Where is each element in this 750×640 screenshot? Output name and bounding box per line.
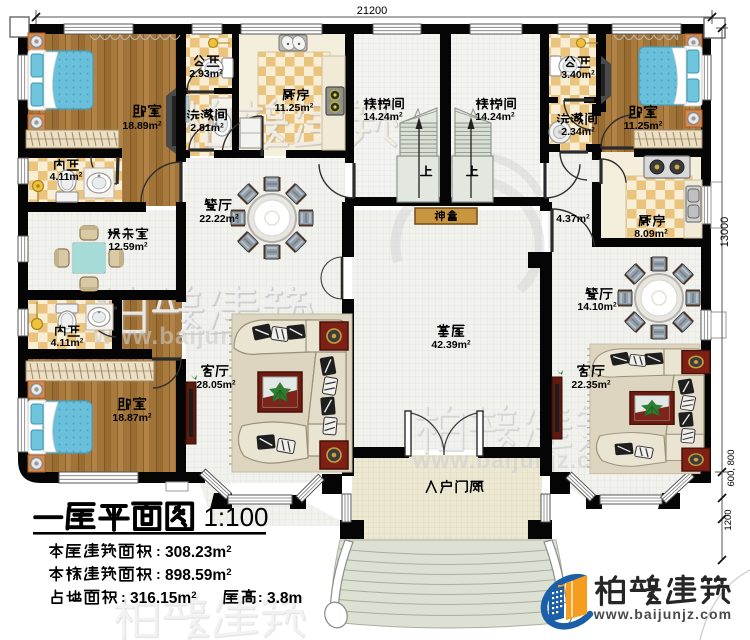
svg-text:3.40m2: 3.40m2 [561,69,595,81]
svg-text:600, 800: 600, 800 [726,450,737,487]
svg-text:4.37m2: 4.37m2 [556,213,590,225]
svg-text:11.25m2: 11.25m2 [624,120,663,132]
svg-text::: : [121,589,126,605]
svg-text:21200: 21200 [357,5,388,17]
svg-text:316.15m2: 316.15m2 [130,590,197,607]
svg-text:898.59m2: 898.59m2 [165,567,232,584]
svg-text:12.59m2: 12.59m2 [108,241,148,253]
svg-text:308.23m2: 308.23m2 [165,544,232,561]
svg-text:22.22m2: 22.22m2 [199,213,239,225]
svg-text:2.81m2: 2.81m2 [190,122,224,134]
svg-text:1200: 1200 [723,509,734,530]
svg-text:3.8m: 3.8m [267,590,302,607]
svg-text::: : [258,589,263,605]
svg-text:42.39m2: 42.39m2 [431,339,471,351]
svg-text::: : [156,566,161,582]
svg-text:www.baijunjz.com: www.baijunjz.com [593,606,732,622]
svg-text:11.25m2: 11.25m2 [275,102,314,114]
svg-text:4.11m2: 4.11m2 [50,171,83,183]
svg-text:2.93m2: 2.93m2 [189,68,223,80]
svg-text:14.10m2: 14.10m2 [577,301,617,313]
svg-text:2.34m2: 2.34m2 [561,126,595,138]
svg-text:14.24m2: 14.24m2 [363,111,403,123]
svg-text:18.87m2: 18.87m2 [112,412,152,424]
svg-text::: : [156,543,161,559]
svg-text:28.05m2: 28.05m2 [196,379,236,391]
svg-text:8.09m2: 8.09m2 [634,228,668,240]
svg-text:1:100: 1:100 [203,502,268,532]
svg-text:4.11m2: 4.11m2 [51,337,84,349]
svg-text:18.89m2: 18.89m2 [122,120,162,132]
svg-text:22.35m2: 22.35m2 [571,379,611,391]
svg-text:14.24m2: 14.24m2 [475,111,515,123]
svg-text:13000: 13000 [719,217,731,248]
